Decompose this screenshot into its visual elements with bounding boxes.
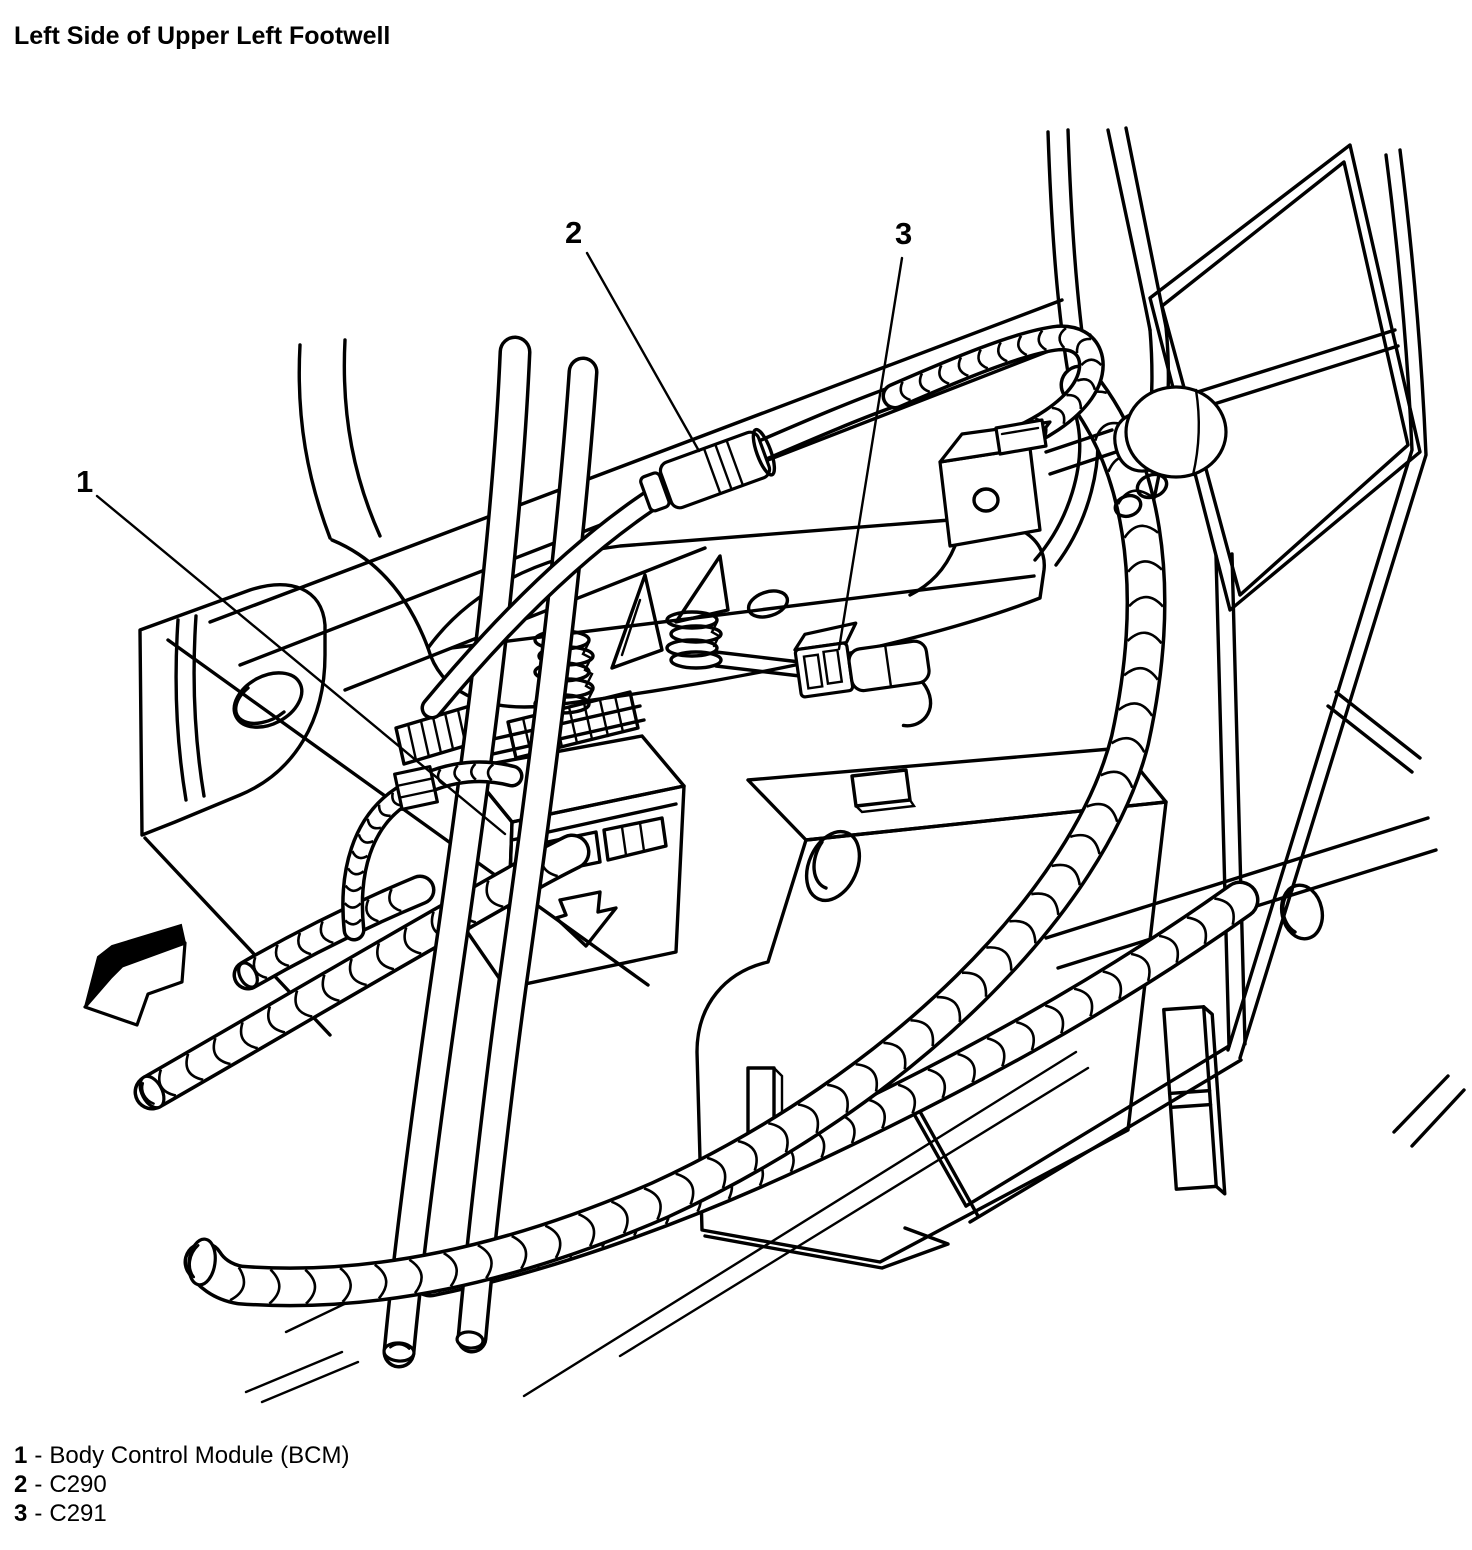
legend-separator: - [27,1500,49,1527]
legend-separator: - [27,1442,49,1469]
service-manual-figure: Left Side of Upper Left Footwell [0,0,1472,1550]
c291-connector [792,614,936,740]
legend-label: C290 [49,1471,106,1498]
callout-2: 2 [565,215,582,250]
legend-label: Body Control Module (BCM) [49,1442,349,1469]
callout-3: 3 [895,216,912,251]
legend-separator: - [27,1471,49,1498]
legend-item-c290: 2-C290 [14,1470,349,1499]
legend-item-bcm: 1-Body Control Module (BCM) [14,1441,349,1470]
legend: 1-Body Control Module (BCM) 2-C290 3-C29… [14,1441,349,1528]
footwell-line-art: 1 2 3 [0,0,1472,1550]
legend-number: 3 [14,1500,27,1527]
view-direction-arrow-icon [85,925,185,1025]
callout-1: 1 [76,464,93,499]
legend-number: 1 [14,1442,27,1469]
legend-number: 2 [14,1471,27,1498]
legend-label: C291 [49,1500,106,1527]
legend-item-c291: 3-C291 [14,1499,349,1528]
c290-connector [637,427,778,518]
